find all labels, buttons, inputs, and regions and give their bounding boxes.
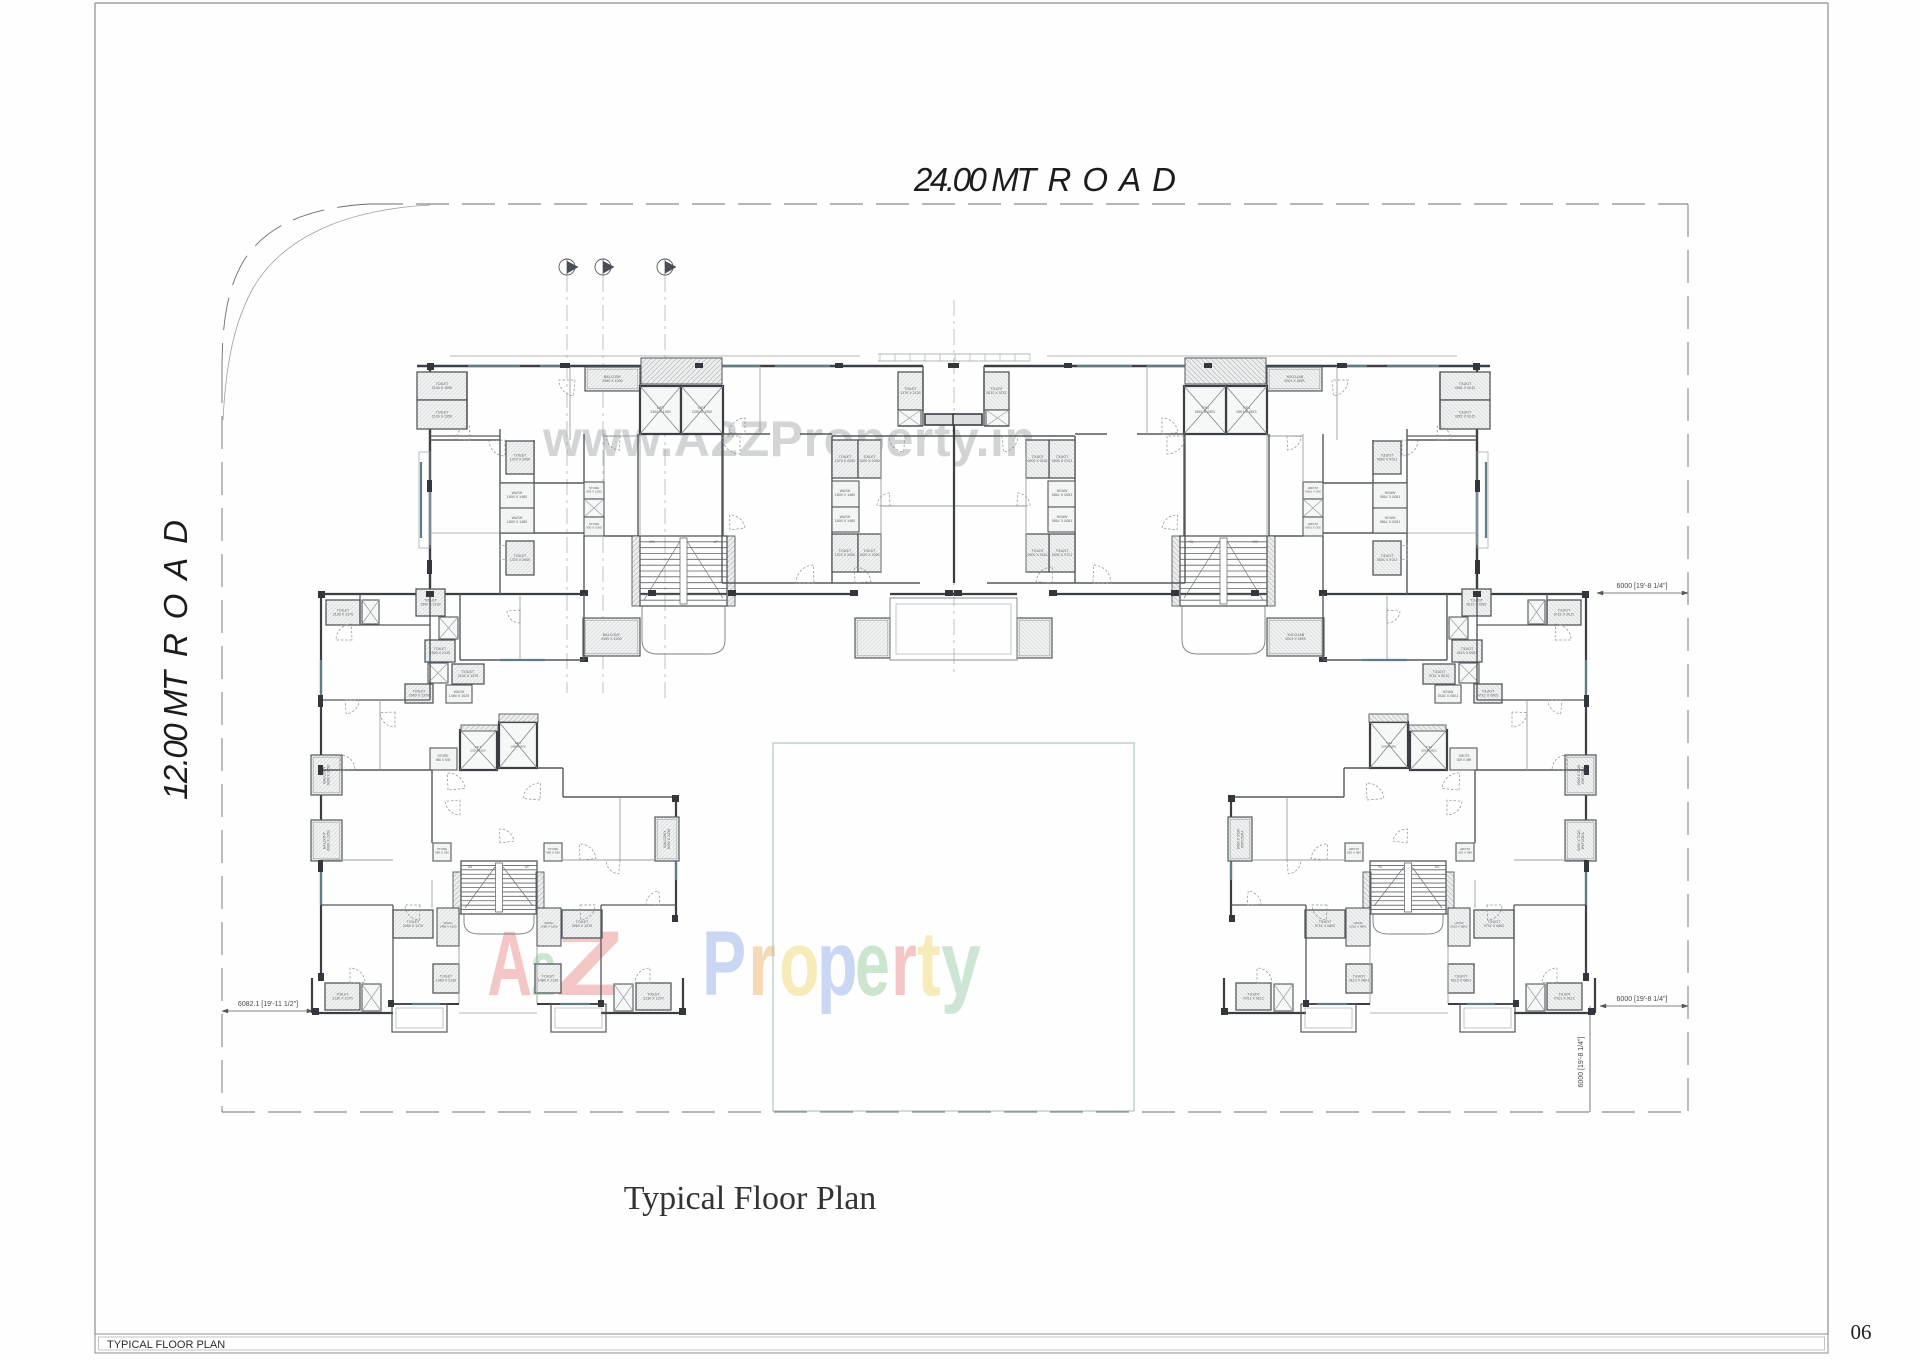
svg-text:1480 X 2130: 1480 X 2130 (1451, 979, 1471, 983)
svg-text:2130 X 1550: 2130 X 1550 (1455, 415, 1475, 419)
svg-text:6082.1 [19'-11 1/2"]: 6082.1 [19'-11 1/2"] (238, 1001, 298, 1008)
svg-text:r: r (891, 911, 917, 1014)
svg-text:950 X 1060: 950 X 1060 (1305, 490, 1321, 494)
svg-text:1370 X 2050: 1370 X 2050 (510, 458, 530, 462)
svg-text:2950 X 1000: 2950 X 1000 (601, 637, 621, 641)
svg-text:UP: UP (1378, 865, 1382, 869)
svg-text:2130 X 1370: 2130 X 1370 (1554, 613, 1574, 617)
svg-text:6000 [19'-8 1/4"]: 6000 [19'-8 1/4"] (1578, 1036, 1585, 1087)
svg-text:UP: UP (714, 540, 719, 544)
svg-text:1520 X 2050: 1520 X 2050 (1027, 553, 1047, 557)
svg-text:1800 X 1480: 1800 X 1480 (507, 520, 527, 524)
svg-text:1520 X 2050: 1520 X 2050 (1027, 459, 1047, 463)
svg-text:o: o (779, 911, 819, 1014)
svg-text:r: r (748, 912, 776, 1015)
svg-text:980 X 930: 980 X 930 (435, 851, 449, 855)
svg-text:6000 [19'-8 1/4"]: 6000 [19'-8 1/4"] (1617, 996, 1668, 1003)
svg-text:1800 X 1480: 1800 X 1480 (835, 493, 855, 497)
svg-text:1370 X 2050: 1370 X 2050 (1377, 558, 1397, 562)
svg-text:980 X 930: 980 X 930 (436, 758, 451, 762)
svg-text:t: t (917, 912, 941, 1015)
svg-text:1520 X 2050: 1520 X 2050 (859, 459, 879, 463)
svg-text:2350 X 1950: 2350 X 1950 (692, 410, 712, 414)
svg-text:1480 X 1650: 1480 X 1650 (439, 925, 456, 929)
svg-text:2350 X 1950: 2350 X 1950 (1236, 410, 1256, 414)
svg-text:1370 X 2050: 1370 X 2050 (1052, 553, 1072, 557)
svg-text:2060 X 1370: 2060 X 1370 (403, 924, 423, 928)
svg-text:1800 X 1480: 1800 X 1480 (1052, 519, 1072, 523)
svg-text:950 X 1060: 950 X 1060 (586, 490, 602, 494)
svg-text:DN: DN (650, 540, 655, 544)
svg-text:1370 X 2130: 1370 X 2130 (900, 391, 920, 395)
svg-text:980 X 930: 980 X 930 (1347, 851, 1361, 855)
svg-text:1800 X 1480: 1800 X 1480 (507, 495, 527, 499)
svg-text:2350 X 1950: 2350 X 1950 (1195, 410, 1215, 414)
svg-text:1480 X 1625: 1480 X 1625 (1438, 694, 1458, 698)
svg-text:980 X 930: 980 X 930 (1457, 758, 1472, 762)
svg-text:1800 X 1480: 1800 X 1480 (1052, 493, 1072, 497)
svg-text:2130 X 1550: 2130 X 1550 (432, 415, 452, 419)
svg-text:1980X2400: 1980X2400 (1381, 745, 1397, 749)
svg-text:2130 X 1370: 2130 X 1370 (332, 997, 352, 1001)
svg-text:06: 06 (1851, 1320, 1872, 1344)
svg-text:1500 X 2130: 1500 X 2130 (1457, 651, 1477, 655)
svg-text:2060 X 1370: 2060 X 1370 (572, 924, 592, 928)
svg-text:12.00 MT R O A D: 12.00 MT R O A D (157, 520, 194, 800)
svg-text:UP: UP (525, 865, 529, 869)
svg-text:1800 X 1480: 1800 X 1480 (1380, 520, 1400, 524)
svg-text:1480 X 1650: 1480 X 1650 (1450, 925, 1467, 929)
svg-text:1370 X 2050: 1370 X 2050 (1377, 458, 1397, 462)
svg-text:1480 X 1625: 1480 X 1625 (449, 694, 469, 698)
svg-text:1480 X 2130: 1480 X 2130 (1349, 979, 1369, 983)
svg-text:6000 X 2250: 6000 X 2250 (327, 830, 331, 850)
svg-text:6000 X 2250: 6000 X 2250 (1236, 829, 1240, 849)
svg-text:DN: DN (1434, 865, 1439, 869)
svg-text:2060 X 1370: 2060 X 1370 (409, 694, 429, 698)
svg-text:24.00 MT R O A D: 24.00 MT R O A D (913, 161, 1176, 198)
svg-text:DN: DN (468, 865, 473, 869)
svg-text:UP: UP (1188, 540, 1193, 544)
svg-text:2350X1950: 2350X1950 (470, 749, 486, 753)
svg-text:930 X 1060: 930 X 1060 (1305, 526, 1321, 530)
svg-text:2060 X 1370: 2060 X 1370 (1478, 694, 1498, 698)
svg-text:1980X2400: 1980X2400 (510, 745, 526, 749)
svg-text:2130 X 1370: 2130 X 1370 (1554, 997, 1574, 1001)
svg-text:1480 X 1650: 1480 X 1650 (1349, 925, 1366, 929)
svg-text:2130 X 1370: 2130 X 1370 (643, 997, 663, 1001)
svg-text:2350 X 1950: 2350 X 1950 (650, 410, 670, 414)
svg-text:6000 X 2250: 6000 X 2250 (1576, 765, 1580, 785)
svg-text:1370 X 2050: 1370 X 2050 (510, 558, 530, 562)
svg-text:2130 X 1550: 2130 X 1550 (432, 386, 452, 390)
svg-text:930 X 1060: 930 X 1060 (586, 526, 602, 530)
svg-text:2060 X 1370: 2060 X 1370 (1484, 924, 1504, 928)
svg-text:980 X 930: 980 X 930 (546, 851, 560, 855)
svg-text:1800 X 1480: 1800 X 1480 (1380, 495, 1400, 499)
svg-text:1800 X 1480: 1800 X 1480 (835, 519, 855, 523)
svg-text:1480 X 1650: 1480 X 1650 (540, 925, 557, 929)
svg-text:2060 X 1370: 2060 X 1370 (1315, 924, 1335, 928)
svg-text:2950 X 1000: 2950 X 1000 (1285, 637, 1305, 641)
svg-text:6000 [19'-8 1/4"]: 6000 [19'-8 1/4"] (1617, 583, 1668, 590)
svg-text:1370 X 2050: 1370 X 2050 (835, 553, 855, 557)
svg-text:1370 X 2050: 1370 X 2050 (1052, 459, 1072, 463)
svg-text:P: P (702, 911, 746, 1014)
svg-text:2130 X 1370: 2130 X 1370 (1429, 674, 1449, 678)
svg-text:1520 X 2050: 1520 X 2050 (859, 553, 879, 557)
svg-text:2950 X 1000: 2950 X 1000 (602, 379, 622, 383)
svg-text:1480 X 2130: 1480 X 2130 (538, 979, 558, 983)
svg-text:DN: DN (1252, 540, 1257, 544)
svg-text:980 X 930: 980 X 930 (1458, 851, 1472, 855)
svg-text:6000 X 2250: 6000 X 2250 (667, 829, 671, 849)
svg-text:y: y (941, 912, 981, 1015)
svg-text:1370 X 2130: 1370 X 2130 (986, 391, 1006, 395)
svg-text:1480 X 2130: 1480 X 2130 (436, 979, 456, 983)
svg-text:TYPICAL FLOOR PLAN: TYPICAL FLOOR PLAN (107, 1339, 225, 1351)
svg-text:2350X1950: 2350X1950 (1421, 749, 1437, 753)
svg-text:e: e (855, 912, 890, 1015)
svg-text:2130 X 1370: 2130 X 1370 (458, 674, 478, 678)
svg-text:1370 X 2050: 1370 X 2050 (835, 459, 855, 463)
svg-text:2950 X 1000: 2950 X 1000 (1284, 379, 1304, 383)
svg-text:2130 X 1370: 2130 X 1370 (333, 613, 353, 617)
svg-text:A: A (487, 912, 532, 1015)
svg-text:2130 X 1550: 2130 X 1550 (1455, 386, 1475, 390)
svg-text:p: p (817, 911, 857, 1014)
svg-text:6000 X 2250: 6000 X 2250 (1576, 830, 1580, 850)
svg-text:2130 X 1370: 2130 X 1370 (1243, 997, 1263, 1001)
svg-text:6000 X 2250: 6000 X 2250 (327, 765, 331, 785)
svg-text:1500 X 2130: 1500 X 2130 (430, 651, 450, 655)
svg-text:Typical Floor Plan: Typical Floor Plan (624, 1180, 877, 1217)
